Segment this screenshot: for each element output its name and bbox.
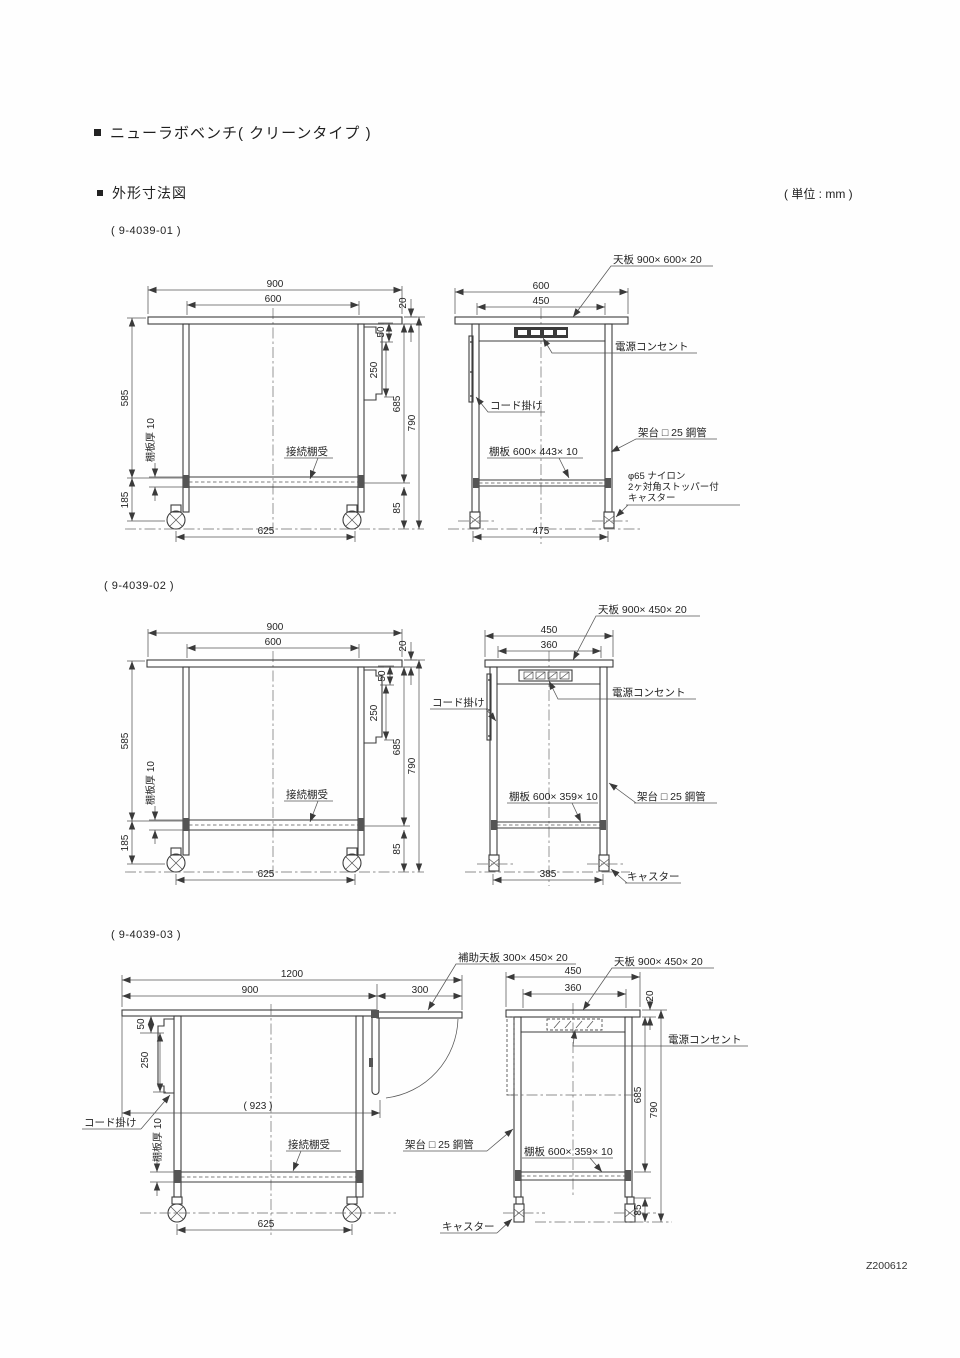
- dim-475: 475: [533, 526, 550, 537]
- dim-900: 900: [267, 622, 284, 633]
- dim-85: 85: [392, 843, 403, 855]
- label-frame: 架台 □ 25 鋼管: [637, 790, 706, 803]
- label-shelf: 棚板 600× 359× 10: [509, 790, 598, 803]
- label-top-plate: 天板 900× 600× 20: [613, 253, 702, 266]
- label-caster-1: φ65 ナイロン: [628, 471, 685, 482]
- dim-185: 185: [120, 491, 131, 508]
- label-shelf: 棚板 600× 359× 10: [524, 1145, 613, 1158]
- dim-85: 85: [633, 1204, 644, 1216]
- dim-385: 385: [540, 869, 557, 880]
- label-caster: キャスター: [627, 871, 680, 883]
- label-cord-hook: コード掛け: [490, 399, 543, 412]
- dim-625: 625: [258, 869, 275, 880]
- dim-600: 600: [265, 294, 282, 305]
- dim-790: 790: [407, 414, 418, 431]
- dim-600: 600: [265, 637, 282, 648]
- drawing1-front-view: 900 600 20 50 250 585 185 棚板厚 10: [120, 279, 425, 542]
- label-caster: キャスター: [442, 1221, 495, 1233]
- dim-923: ( 923 ): [244, 1101, 273, 1112]
- dim-900: 900: [267, 279, 284, 290]
- drawing3-front-view: 1200 900 300 50 250 ( 923 ) 棚板厚 10 625: [82, 951, 576, 1236]
- label-aux-top-plate: 補助天板 300× 450× 20: [458, 951, 568, 964]
- dim-790: 790: [407, 757, 418, 774]
- dim-250: 250: [369, 704, 380, 721]
- dim-50: 50: [376, 326, 387, 338]
- label-cord-hook: コード掛け: [432, 696, 485, 709]
- label-shelf-bracket: 接続棚受: [288, 1138, 330, 1151]
- dim-600: 600: [533, 281, 550, 292]
- dim-20: 20: [645, 990, 656, 1002]
- dim-685: 685: [392, 738, 403, 755]
- dim-685: 685: [633, 1086, 644, 1103]
- dim-85: 85: [392, 502, 403, 514]
- catalog-page: ニューラボベンチ( クリーンタイプ ) 外形寸法図 ( 単位 : mm ) ( …: [0, 0, 960, 1358]
- label-outlet: 電源コンセント: [615, 340, 689, 353]
- drawing1-side-view: 600 450 475 天板 900× 600× 20 電源コンセント コード掛…: [448, 253, 740, 544]
- dim-900: 900: [242, 985, 259, 996]
- dim-585: 585: [120, 389, 131, 406]
- dim-300: 300: [412, 985, 429, 996]
- label-caster-2: 2ヶ対角ストッパー付: [628, 481, 719, 493]
- label-top-plate: 天板 900× 450× 20: [598, 603, 687, 616]
- dim-250: 250: [369, 361, 380, 378]
- dim-450: 450: [565, 966, 582, 977]
- label-shelf-thickness: 棚板厚 10: [144, 761, 157, 805]
- dim-360: 360: [565, 983, 582, 994]
- label-shelf-thickness: 棚板厚 10: [144, 418, 157, 462]
- label-top-plate: 天板 900× 450× 20: [614, 955, 703, 968]
- dim-360: 360: [541, 640, 558, 651]
- drawing2-front-view: 900 600 20 50 250 585 185 棚板厚 10: [120, 622, 425, 885]
- label-outlet: 電源コンセント: [612, 686, 686, 699]
- dim-185: 185: [120, 834, 131, 851]
- dim-450: 450: [541, 625, 558, 636]
- dim-585: 585: [120, 732, 131, 749]
- label-shelf: 棚板 600× 443× 10: [489, 445, 578, 458]
- dim-790: 790: [649, 1101, 660, 1118]
- dim-20: 20: [398, 297, 409, 309]
- drawing3-side-view: 450 360 20 685 85 790 天板 900× 450× 20 電源…: [503, 955, 748, 1222]
- label-cord-hook: コード掛け: [84, 1116, 137, 1129]
- dim-685: 685: [392, 395, 403, 412]
- dim-20: 20: [398, 640, 409, 652]
- dim-625: 625: [258, 1219, 275, 1230]
- label-shelf-bracket: 接続棚受: [286, 788, 328, 801]
- label-frame: 架台 □ 25 鋼管: [405, 1138, 474, 1151]
- label-frame: 架台 □ 25 鋼管: [638, 426, 707, 439]
- drawing2-side-view: 450 360 385 天板 900× 450× 20 電源コンセント コード掛…: [430, 603, 717, 886]
- label-shelf-thickness: 棚板厚 10: [151, 1118, 164, 1162]
- dim-50: 50: [377, 670, 388, 682]
- dim-450: 450: [533, 296, 550, 307]
- dim-250: 250: [140, 1051, 151, 1068]
- dim-625: 625: [258, 526, 275, 537]
- dim-50: 50: [136, 1018, 147, 1030]
- dimension-drawings: 900 600 20 50 250 585 185 棚板厚 10: [0, 0, 960, 1358]
- label-caster-3: キャスター: [628, 493, 676, 504]
- label-shelf-bracket: 接続棚受: [286, 445, 328, 458]
- label-outlet: 電源コンセント: [668, 1033, 742, 1046]
- dim-1200: 1200: [281, 969, 304, 980]
